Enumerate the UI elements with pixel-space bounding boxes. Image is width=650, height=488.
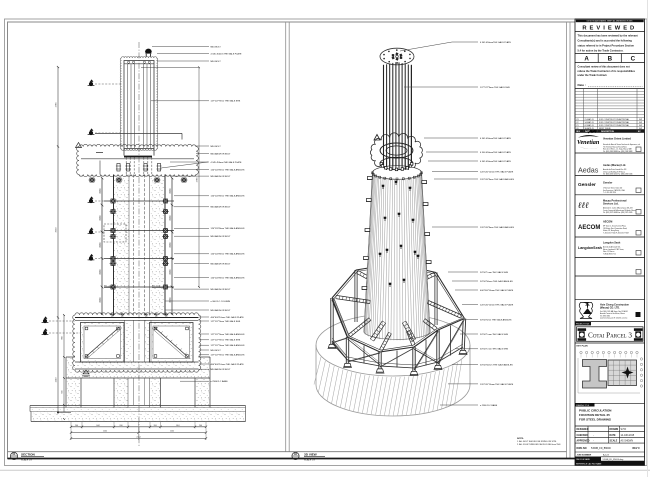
svg-text:Date :: Date : [578, 83, 586, 87]
svg-text:200: 200 [154, 425, 157, 427]
svg-text:4 345 450mmTHK GALS PLATE: 4 345 450mmTHK GALS PLATE [480, 41, 511, 44]
svg-text:Tel: (853) 2875 3088 Fax: (85: Tel: (853) 2875 3088 Fax: (853) 2875 308… [603, 212, 633, 214]
svg-text:3030: 3030 [170, 269, 172, 275]
svg-text:3030: 3030 [100, 269, 102, 275]
svg-text:3030: 3030 [100, 188, 102, 194]
svg-text:127*127*9mm THK GALS ANGLES: 127*127*9mm THK GALS ANGLES [211, 344, 245, 347]
svg-text:4 345 450mmTHK GALS PLATE: 4 345 450mmTHK GALS PLATE [211, 161, 242, 164]
svg-text:120*120*8mm THK GALS ANGLES: 120*120*8mm THK GALS ANGLES [480, 178, 514, 181]
svg-text:50*50*5mm THK GALS ANGLES: 50*50*5mm THK GALS ANGLES [480, 318, 512, 321]
svg-text:120*120*8mm THK GALS ANGLES: 120*120*8mm THK GALS ANGLES [480, 226, 514, 229]
svg-text:Tel: 2870 0380: Tel: 2870 0380 [600, 315, 610, 317]
svg-text:4 300 450mmTHK GALS PLATE: 4 300 450mmTHK GALS PLATE [480, 151, 511, 154]
svg-text:a 300 R.C COLUMN: a 300 R.C COLUMN [211, 301, 231, 303]
svg-text:2. ALL FILLET WELDED SHOULD BE: 2. ALL FILLET WELDED SHOULD BE 6mm THK. [517, 443, 561, 446]
svg-text:127*127*9mm THK GALS SHS: 127*127*9mm THK GALS SHS [211, 100, 241, 103]
svg-text:SCALE: SCALE [610, 440, 618, 443]
svg-text:M16 BOLT: M16 BOLT [211, 146, 222, 148]
svg-text:M16 ANCHOR BOLT: M16 ANCHOR BOLT [211, 152, 232, 155]
svg-text:Gensler: Gensler [603, 182, 612, 185]
svg-text:1. ALL BOLT SHOULD BE FIXING O: 1. ALL BOLT SHOULD BE FIXING ON SITE. [517, 440, 557, 443]
svg-text:DWG NO: DWG NO [577, 447, 587, 450]
svg-text:14-JUN-2015: 14-JUN-2015 [621, 435, 635, 437]
svg-text:AS SHOWN: AS SHOWN [621, 440, 634, 443]
svg-text:M16 ANCHOR BOLT: M16 ANCHOR BOLT [211, 309, 232, 312]
svg-text:400*200*50mm THK GALS PLATE: 400*200*50mm THK GALS PLATE [480, 289, 514, 292]
svg-text:Venetian Orient Limited: Venetian Orient Limited [603, 138, 631, 141]
svg-text:844: 844 [96, 425, 99, 427]
svg-text:M16 BOLT: M16 BOLT [211, 350, 222, 352]
svg-text:Cotai Parcel 3: Cotai Parcel 3 [588, 331, 632, 339]
svg-text:T +1 415 433 3700: T +1 415 433 3700 [603, 192, 616, 194]
svg-text:50*50*50mm THK GALS ANGLES: 50*50*50mm THK GALS ANGLES [480, 364, 513, 367]
svg-text:M16 ANCHOR BOLT: M16 ANCHOR BOLT [211, 263, 232, 266]
svg-text:50*50*5 mm THK GALS SHS: 50*50*5 mm THK GALS SHS [480, 348, 508, 351]
svg-text:5.4 for action by the Trade Co: 5.4 for action by the Trade Contractor. [578, 48, 624, 52]
svg-text:4 345 450mmTHK GALS PLATE: 4 345 450mmTHK GALS PLATE [480, 160, 511, 163]
svg-text:DATE: DATE [610, 434, 617, 437]
svg-text:a 2580 R.C BASE: a 2580 R.C BASE [480, 404, 498, 407]
svg-text:DRAWING TITLE: DRAWING TITLE [576, 404, 590, 407]
svg-text:127*127*9mm THK GALS SHS: 127*127*9mm THK GALS SHS [211, 339, 241, 342]
svg-text:FOR STEEL DRAWING: FOR STEEL DRAWING [579, 417, 612, 421]
svg-text:C: C [631, 56, 636, 63]
svg-text:Consultants(s) and is accorded: Consultants(s) and is accorded the follo… [578, 39, 633, 43]
svg-text:T +852 2317 7000 F +852 2317: T +852 2317 7000 F +852 2317 7609 [603, 232, 629, 234]
svg-text:JOB NUMBER: JOB NUMBER [577, 455, 592, 457]
svg-text:Langdon Seah: Langdon Seah [603, 242, 621, 245]
svg-text:Services Ltd.: Services Ltd. [603, 203, 619, 206]
svg-text:50*50*50mm THK GALS ANGLES: 50*50*50mm THK GALS ANGLES [480, 280, 513, 283]
svg-text:M16 ANCHOR BOLT: M16 ANCHOR BOLT [211, 368, 232, 371]
svg-text:SCALE 1:8: SCALE 1:8 [304, 458, 316, 461]
svg-text:3030: 3030 [170, 188, 172, 194]
svg-text:China Law Building 21/F, Macau: China Law Building 21/F, Macau [603, 171, 625, 173]
svg-text:3030: 3030 [100, 242, 102, 248]
svg-text:3030: 3030 [100, 297, 102, 303]
svg-text:4 345 450mmTHK GALS PLATE: 4 345 450mmTHK GALS PLATE [480, 137, 511, 140]
svg-text:SCALE 1:8: SCALE 1:8 [21, 458, 33, 461]
svg-text:CAD FILE NAME: CAD FILE NAME [576, 458, 591, 461]
svg-text:400*600*10mm THK GALS PLATE: 400*600*10mm THK GALS PLATE [211, 316, 245, 319]
svg-text:a 2580 R.C BASE: a 2580 R.C BASE [211, 380, 229, 383]
svg-text:400*600*10mm THK GALS PLATE: 400*600*10mm THK GALS PLATE [211, 363, 245, 366]
svg-text:www.hsinchong.com E: info@hc: www.hsinchong.com E: info@hc.com.mo [600, 318, 627, 320]
svg-text:REV C: REV C [633, 447, 641, 450]
svg-text:FOUNTAIN DETAIL 25: FOUNTAIN DETAIL 25 [579, 413, 610, 417]
svg-text:127*127*9mm THK GALS ANGLES: 127*127*9mm THK GALS ANGLES [211, 333, 245, 336]
svg-text:REFERENCE CAD FILE NAME: REFERENCE CAD FILE NAME [576, 462, 602, 465]
svg-text:120*120*8mm THK GALS ANGLES: 120*120*8mm THK GALS ANGLES [211, 253, 245, 256]
svg-text:1240: 1240 [56, 377, 58, 383]
svg-text:127*127*9mm THK GALS SHS: 127*127*9mm THK GALS SHS [480, 86, 510, 89]
svg-text:Venetian: Venetian [577, 139, 600, 146]
svg-text:A: A [584, 56, 589, 63]
svg-text:F.F.L +1.50: F.F.L +1.50 [152, 286, 160, 288]
svg-text:3030: 3030 [100, 215, 102, 221]
svg-text:1202: 1202 [170, 431, 174, 433]
svg-text:5150B_FD_B5000: 5150B_FD_B5000 [591, 447, 611, 450]
svg-text:Gensler: Gensler [578, 182, 596, 188]
svg-text:1786: 1786 [197, 177, 199, 183]
svg-text:3030: 3030 [170, 242, 172, 248]
svg-text:127*127*9mm THK GALS ANGLES: 127*127*9mm THK GALS ANGLES [211, 354, 245, 357]
svg-text:relieve the Trade Contractor o: relieve the Trade Contractor of its resp… [578, 70, 636, 73]
svg-text:120*120*8mm THK GALS ANGLES: 120*120*8mm THK GALS ANGLES [211, 195, 245, 198]
svg-text:LangdonSeah: LangdonSeah [578, 246, 602, 250]
svg-text:NOTE:: NOTE: [517, 438, 524, 440]
svg-text:3030: 3030 [56, 227, 58, 233]
svg-text:844: 844 [176, 425, 179, 427]
svg-text:3030: 3030 [170, 215, 172, 221]
svg-text:CHECKED: CHECKED [577, 435, 589, 437]
svg-text:1202: 1202 [103, 431, 107, 433]
svg-text:120*120*8mm THK GALS ANGLES: 120*120*8mm THK GALS ANGLES [211, 168, 245, 171]
svg-text:ℓℓℓ: ℓℓℓ [578, 200, 589, 210]
svg-text:50*50*5 mm THK GALS SHS: 50*50*5 mm THK GALS SHS [480, 333, 508, 336]
svg-text:3D VIEW: 3D VIEW [304, 453, 317, 457]
svg-text:AECOM: AECOM [578, 225, 600, 231]
svg-text:Tel: (853) 2882 8888 Fax: (: Tel: (853) 2882 8888 Fax: (853) 2882 888… [603, 151, 633, 153]
svg-text:120*120*8mm THK GALS ANGLES: 120*120*8mm THK GALS ANGLES [211, 276, 245, 279]
svg-text:under the Trade Contract.: under the Trade Contract. [578, 74, 608, 77]
svg-text:DRAWN: DRAWN [610, 428, 619, 431]
svg-text:(Macau) CO. LTD.: (Macau) CO. LTD. [600, 307, 620, 310]
svg-text:M16 ANCHOR BOLT: M16 ANCHOR BOLT [211, 206, 232, 209]
svg-text:3030: 3030 [170, 297, 172, 303]
svg-text:120*120*8mm THK GALS ANGLES: 120*120*8mm THK GALS ANGLES [211, 227, 245, 230]
svg-text:200: 200 [119, 425, 122, 427]
svg-text:120*120*10mm THK GALS PLATE: 120*120*10mm THK GALS PLATE [480, 170, 514, 173]
svg-text:SECTION: SECTION [21, 453, 36, 457]
svg-text:120*120*10mm THK GALS PLATE: 120*120*10mm THK GALS PLATE [480, 383, 514, 386]
svg-text:M16 BOLT: M16 BOLT [211, 46, 222, 48]
svg-text:T (853) 2833 1710: T (853) 2833 1710 [603, 253, 616, 255]
svg-text:This document has been reviewe: This document has been reviewed by the r… [578, 34, 638, 38]
svg-text:Aedas: Aedas [578, 166, 599, 175]
svg-text:120*120*10mm THK GALS PLATE: 120*120*10mm THK GALS PLATE [480, 304, 514, 307]
svg-text:S.HO: S.HO [621, 429, 627, 431]
svg-text:200: 200 [199, 425, 202, 427]
svg-text:PUBLIC CIRCULATION: PUBLIC CIRCULATION [579, 408, 611, 412]
svg-text:status referred to in Project: status referred to in Project Procedure … [578, 43, 635, 47]
svg-text:AECOM: AECOM [603, 221, 612, 224]
svg-text:F.F.L +1.50: F.F.L +1.50 [104, 286, 112, 288]
svg-text:200: 200 [75, 425, 78, 427]
svg-text:Aedas (Macau) Ltd.: Aedas (Macau) Ltd. [603, 164, 626, 167]
svg-text:4 345 450mmTHK GALS PLATE: 4 345 450mmTHK GALS PLATE [211, 52, 242, 55]
svg-text:1786: 1786 [56, 102, 58, 108]
svg-text:Consultant review of this docu: Consultant review of this document does … [578, 66, 630, 69]
svg-text:PROJECT TITLE: PROJECT TITLE [576, 324, 590, 326]
svg-text:KEY PLAN: KEY PLAN [577, 345, 588, 348]
svg-text:50*50*5 mm THK GALS SHS: 50*50*5 mm THK GALS SHS [480, 271, 508, 274]
svg-text:127*127*9mm THK GALS SHS: 127*127*9mm THK GALS SHS [211, 320, 241, 323]
svg-text:A-124: A-124 [603, 454, 610, 457]
svg-text:M16 ANCHOR BOLT: M16 ANCHOR BOLT [211, 175, 232, 178]
svg-text:REVIEWED: REVIEWED [582, 25, 637, 31]
svg-text:M16 ANCHOR BOLT: M16 ANCHOR BOLT [211, 288, 232, 291]
svg-text:DESIGNED: DESIGNED [577, 429, 589, 431]
svg-text:B: B [608, 56, 613, 63]
svg-text:M16 ANCHOR BOLT: M16 ANCHOR BOLT [211, 235, 232, 238]
svg-text:M16 BOLT: M16 BOLT [211, 61, 222, 63]
